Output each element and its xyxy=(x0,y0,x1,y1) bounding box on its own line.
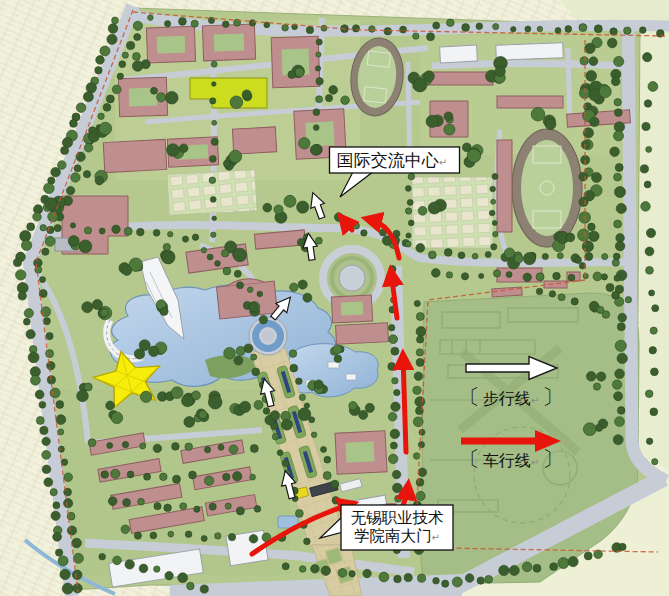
walk-route-label: 〔步行线↵〕 xyxy=(459,385,563,409)
roundabout xyxy=(249,317,287,355)
courts-west xyxy=(167,170,257,216)
exchange-center-label: 国际交流中心↵ xyxy=(337,150,447,170)
stadium-large xyxy=(512,129,582,247)
campus-map-canvas: 〔步行线↵〕 〔车行线↵〕 国际交流中心↵ 无锡职业技术 学院南大门↵ xyxy=(0,0,669,596)
south-gate-label-line2: 学院南大门↵ xyxy=(354,527,440,545)
south-gate-label-line1: 无锡职业技术 xyxy=(351,509,444,527)
campus-map: 〔步行线↵〕 〔车行线↵〕 国际交流中心↵ 无锡职业技术 学院南大门↵ xyxy=(0,0,669,596)
vehicle-route-label: 〔车行线↵〕 xyxy=(459,447,563,471)
